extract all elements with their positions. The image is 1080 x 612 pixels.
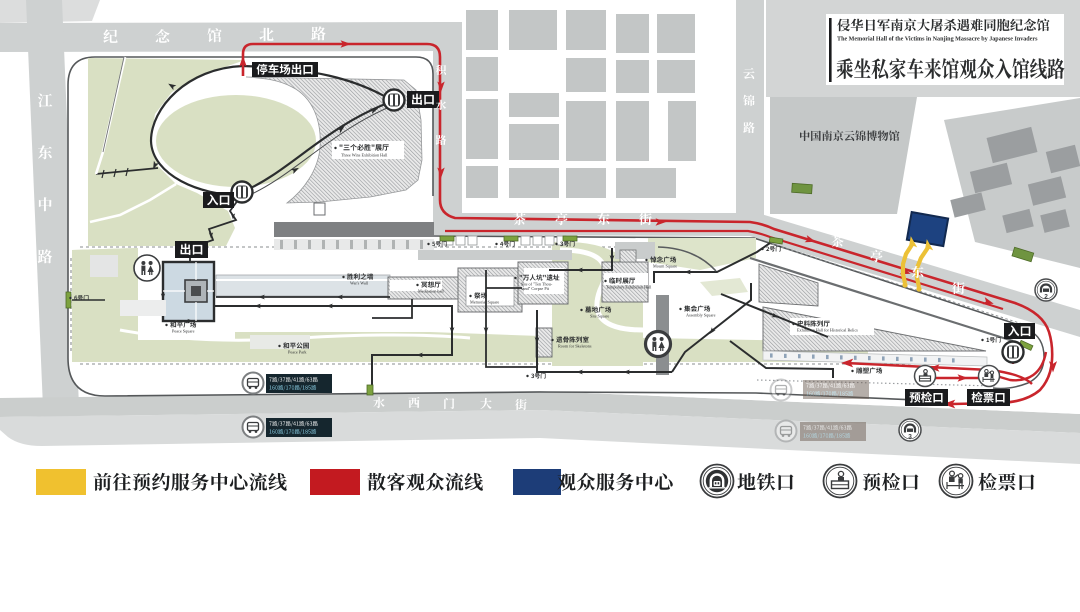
svg-text:Three Wins Exhibition Hall: Three Wins Exhibition Hall [341, 153, 388, 158]
svg-text:Peace Park: Peace Park [288, 350, 307, 355]
svg-text:War's Wall: War's Wall [350, 281, 369, 286]
svg-text:Peace Square: Peace Square [172, 329, 195, 334]
svg-text:Site Square: Site Square [590, 314, 609, 319]
svg-text:Exhibition Hall for Historical: Exhibition Hall for Historical Relics [797, 328, 858, 333]
svg-text:2: 2 [1044, 294, 1048, 301]
svg-text:The Memorial Hall of the Victi: The Memorial Hall of the Victims in Nanj… [837, 37, 1038, 43]
svg-text:Meditation hall: Meditation hall [418, 289, 445, 294]
svg-text:3: 3 [908, 434, 912, 441]
svg-text:Temporary Exhibition Hall: Temporary Exhibition Hall [606, 285, 652, 290]
svg-text:Memorial Square: Memorial Square [470, 300, 499, 305]
svg-text:sand" Corpse Pit: sand" Corpse Pit [521, 286, 550, 291]
svg-text:Assembly Square: Assembly Square [686, 313, 716, 318]
svg-text:Room for Skeletons: Room for Skeletons [558, 344, 592, 349]
svg-text:Mourn Square: Mourn Square [653, 264, 677, 269]
